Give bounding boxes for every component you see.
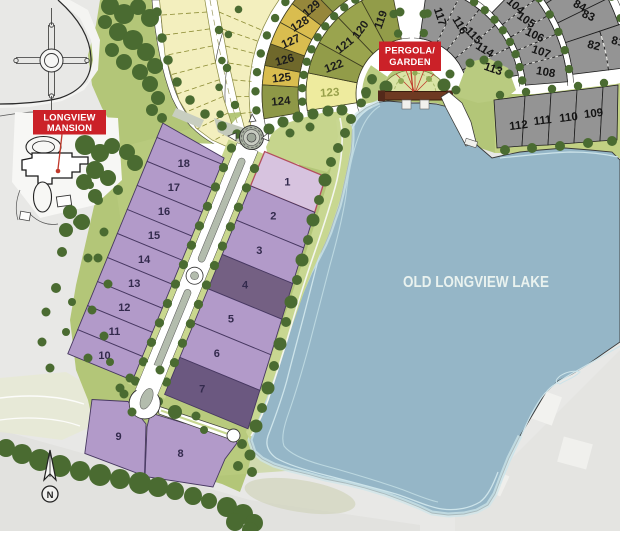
svg-text:2: 2 [270,211,276,223]
svg-text:8: 8 [178,448,184,460]
svg-text:N: N [47,490,54,501]
svg-text:15: 15 [148,230,160,242]
svg-text:PERGOLA/: PERGOLA/ [385,46,435,56]
svg-text:12: 12 [118,302,130,314]
svg-text:OLD LONGVIEW LAKE: OLD LONGVIEW LAKE [403,274,549,291]
svg-text:110: 110 [559,111,579,125]
svg-text:6: 6 [214,348,220,360]
svg-text:LONGVIEW: LONGVIEW [43,113,95,123]
svg-text:111: 111 [533,114,553,128]
svg-text:109: 109 [583,107,604,121]
svg-text:4: 4 [242,279,249,291]
svg-text:1: 1 [284,176,290,188]
svg-text:16: 16 [158,206,170,218]
svg-text:17: 17 [168,182,180,194]
svg-text:112: 112 [509,119,529,133]
svg-text:9: 9 [115,431,121,443]
svg-text:5: 5 [228,314,234,326]
svg-text:13: 13 [128,278,140,290]
svg-text:125: 125 [271,71,292,85]
svg-text:14: 14 [138,254,151,266]
svg-text:11: 11 [109,326,121,338]
svg-text:18: 18 [178,158,190,170]
svg-text:3: 3 [256,245,262,257]
svg-text:MANSION: MANSION [47,123,92,133]
svg-text:GARDEN: GARDEN [389,57,431,67]
svg-text:123: 123 [320,87,340,100]
svg-text:7: 7 [199,384,205,396]
svg-text:124: 124 [271,95,292,109]
